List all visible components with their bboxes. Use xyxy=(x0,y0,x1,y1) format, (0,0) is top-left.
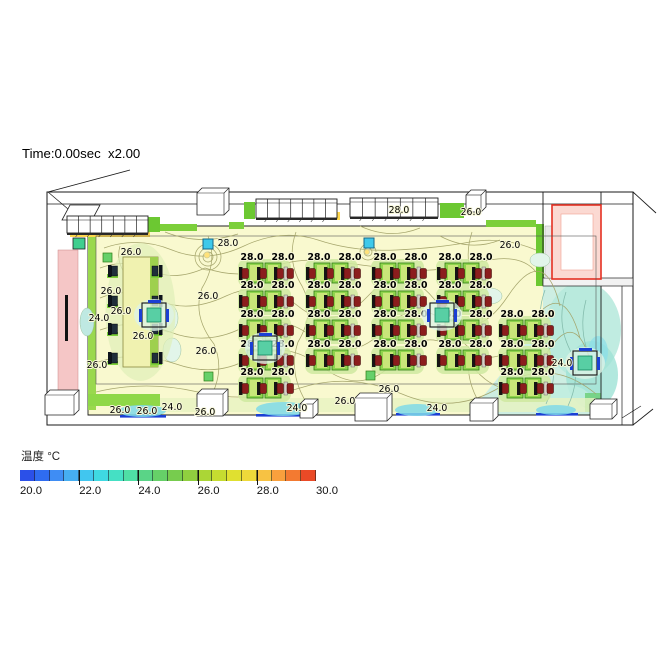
ceiling-vent xyxy=(67,216,148,237)
colorbar-segment xyxy=(20,470,35,481)
chair xyxy=(306,324,316,337)
chair xyxy=(499,354,509,367)
chair xyxy=(534,382,544,395)
chair xyxy=(341,324,351,337)
chair xyxy=(534,354,544,367)
cfd-simulation-screenshot: { "header": { "time_label": "Time:0.00se… xyxy=(0,0,661,661)
contour-label: 26.0 xyxy=(335,396,356,407)
colorbar-segment xyxy=(138,470,153,481)
colorbar-tick-label: 30.0 xyxy=(316,485,338,497)
desk-temp-label: 28.0 xyxy=(405,252,428,263)
contour-label: 24.0 xyxy=(552,358,573,369)
colorbar-segment xyxy=(64,470,79,481)
chair xyxy=(107,352,118,365)
desk-temp-label: 28.0 xyxy=(374,309,397,320)
desk-temp-label: 28.0 xyxy=(272,280,295,291)
desk-temp-label: 28.0 xyxy=(308,252,331,263)
contour-label: 26.0 xyxy=(196,346,217,357)
colorbar-segment xyxy=(109,470,124,481)
chair xyxy=(499,324,509,337)
chair xyxy=(306,354,316,367)
chair xyxy=(306,295,316,308)
chair xyxy=(239,382,249,395)
chair xyxy=(284,324,294,337)
equipment-unit xyxy=(422,299,462,331)
chair xyxy=(351,354,361,367)
colorbar-segment xyxy=(183,470,198,481)
contour-label: 24.0 xyxy=(162,402,183,413)
chair xyxy=(324,354,334,367)
chair xyxy=(257,382,267,395)
colorbar-tick xyxy=(198,470,199,485)
chair xyxy=(341,295,351,308)
desk-temp-label: 28.0 xyxy=(241,252,264,263)
desk-temp-label: 28.0 xyxy=(532,339,555,350)
colorbar-segment xyxy=(50,470,65,481)
chair xyxy=(417,295,427,308)
chair xyxy=(407,354,417,367)
colorbar-segment xyxy=(212,470,227,481)
chair xyxy=(417,324,427,337)
chair xyxy=(324,267,334,280)
contour-label: 26.0 xyxy=(87,360,108,371)
chair xyxy=(417,354,427,367)
contour-label: 26.0 xyxy=(110,405,131,416)
desk-temp-label: 28.0 xyxy=(405,280,428,291)
desk-temp-label: 28.0 xyxy=(501,309,524,320)
chair xyxy=(472,267,482,280)
chair xyxy=(372,267,382,280)
chair xyxy=(472,295,482,308)
chair xyxy=(455,267,465,280)
desk-temp-label: 28.0 xyxy=(339,309,362,320)
chair xyxy=(437,354,447,367)
chair xyxy=(437,267,447,280)
wall-box xyxy=(590,399,617,419)
desk-temp-label: 28.0 xyxy=(339,339,362,350)
contour-label: 26.0 xyxy=(500,240,521,251)
desk-temp-label: 28.0 xyxy=(241,280,264,291)
chair xyxy=(517,382,527,395)
colorbar-segment xyxy=(124,470,139,481)
chair xyxy=(390,354,400,367)
desk-temp-label: 28.0 xyxy=(308,280,331,291)
temperature-colorbar xyxy=(20,470,316,481)
colorbar-segment xyxy=(35,470,50,481)
desk-temp-label: 28.0 xyxy=(470,309,493,320)
equipment-unit xyxy=(134,299,174,331)
chair xyxy=(372,295,382,308)
chair xyxy=(482,324,492,337)
cool-air-spot xyxy=(536,405,576,415)
ceiling-vent xyxy=(256,199,337,222)
desk-temp-label: 28.0 xyxy=(532,309,555,320)
chair xyxy=(151,352,163,365)
chair xyxy=(306,267,316,280)
chair xyxy=(324,324,334,337)
chair xyxy=(257,295,267,308)
colorbar-tick xyxy=(257,470,258,485)
colorbar-tick-label: 28.0 xyxy=(257,485,279,497)
chair xyxy=(239,354,249,367)
contour-label: 26.0 xyxy=(195,407,216,418)
chair xyxy=(544,324,554,337)
chair xyxy=(239,295,249,308)
wall-sensor-marker xyxy=(73,238,85,249)
colorbar-tick-label: 22.0 xyxy=(79,485,101,497)
chair xyxy=(274,267,284,280)
contour-label: 24.0 xyxy=(427,403,448,414)
chair xyxy=(284,267,294,280)
chair xyxy=(284,295,294,308)
desk-temp-label: 28.0 xyxy=(501,339,524,350)
wall-box xyxy=(45,390,79,415)
contour-label: 26.0 xyxy=(379,384,400,395)
colorbar-tick-label: 20.0 xyxy=(20,485,42,497)
colorbar-segment xyxy=(198,470,213,481)
chair xyxy=(274,382,284,395)
contour-label: 28.0 xyxy=(218,238,239,249)
wall-box xyxy=(197,188,229,215)
equipment-unit xyxy=(245,332,285,364)
chair xyxy=(351,267,361,280)
desk-temp-label: 28.0 xyxy=(439,280,462,291)
chair xyxy=(351,324,361,337)
desk-temp-label: 28.0 xyxy=(470,280,493,291)
wall-box xyxy=(355,393,392,421)
chair xyxy=(417,267,427,280)
chair xyxy=(390,267,400,280)
green-marker xyxy=(204,372,213,381)
colorbar-segment xyxy=(153,470,168,481)
chair xyxy=(482,295,492,308)
desk-temp-label: 28.0 xyxy=(405,339,428,350)
chair xyxy=(239,267,249,280)
colorbar-tick-label: 24.0 xyxy=(138,485,160,497)
chair xyxy=(472,354,482,367)
sensor-marker xyxy=(203,239,213,249)
chair xyxy=(517,354,527,367)
colorbar-segment xyxy=(168,470,183,481)
chair xyxy=(284,382,294,395)
chair xyxy=(324,295,334,308)
contour-label: 26.0 xyxy=(198,291,219,302)
contour-label: 28.0 xyxy=(389,205,410,216)
chair xyxy=(341,354,351,367)
desk-temp-label: 28.0 xyxy=(470,339,493,350)
contour-label: 24.0 xyxy=(287,403,308,414)
green-marker xyxy=(366,371,375,380)
chair xyxy=(455,354,465,367)
chair xyxy=(341,267,351,280)
chair xyxy=(390,295,400,308)
contour-label: 24.0 xyxy=(89,313,110,324)
colorbar-segment xyxy=(242,470,257,481)
chair xyxy=(517,324,527,337)
chair xyxy=(151,265,163,278)
desk-temp-label: 28.0 xyxy=(470,252,493,263)
chair xyxy=(372,324,382,337)
contour-label: 26.0 xyxy=(137,406,158,417)
desk-temp-label: 28.0 xyxy=(374,252,397,263)
chair xyxy=(284,354,294,367)
chair xyxy=(107,323,118,336)
room-thermal-map: 28.028.028.028.028.028.028.028.028.028.0… xyxy=(0,0,661,661)
left-wall xyxy=(58,250,78,392)
desk-temp-label: 28.0 xyxy=(339,252,362,263)
chair xyxy=(407,267,417,280)
chair xyxy=(390,324,400,337)
colorbar-segment xyxy=(94,470,109,481)
desk-temp-label: 28.0 xyxy=(501,367,524,378)
chair xyxy=(472,324,482,337)
desk-temp-label: 28.0 xyxy=(339,280,362,291)
contour-label: 26.0 xyxy=(133,331,154,342)
chair xyxy=(407,324,417,337)
desk-temp-label: 28.0 xyxy=(308,309,331,320)
chair xyxy=(274,295,284,308)
chair xyxy=(107,265,118,278)
contour-label: 26.0 xyxy=(101,286,122,297)
legend-title: 温度 °C xyxy=(21,448,360,464)
desk-temp-label: 28.0 xyxy=(272,367,295,378)
contour-label: 26.0 xyxy=(111,306,132,317)
colorbar-segment xyxy=(286,470,301,481)
desk-temp-label: 28.0 xyxy=(439,339,462,350)
colorbar-segment xyxy=(301,470,316,481)
colorbar-legend: 温度 °C 20.022.024.026.028.030.0 xyxy=(20,448,360,501)
desk-temp-label: 28.0 xyxy=(272,309,295,320)
contour-label: 26.0 xyxy=(121,247,142,258)
chair xyxy=(351,295,361,308)
green-marker xyxy=(103,253,112,262)
colorbar-tick-labels: 20.022.024.026.028.030.0 xyxy=(20,485,360,501)
sensor-marker xyxy=(364,238,374,248)
chair xyxy=(257,267,267,280)
chair xyxy=(482,267,492,280)
chair xyxy=(407,295,417,308)
colorbar-segment xyxy=(272,470,287,481)
chair xyxy=(499,382,509,395)
colorbar-segment xyxy=(227,470,242,481)
chair xyxy=(544,382,554,395)
chair xyxy=(482,354,492,367)
desk-temp-label: 28.0 xyxy=(308,339,331,350)
desk-temp-label: 28.0 xyxy=(241,309,264,320)
contour-label: 26.0 xyxy=(461,207,482,218)
colorbar-segment xyxy=(79,470,94,481)
desk-temp-label: 28.0 xyxy=(241,367,264,378)
wall-slot xyxy=(65,295,68,341)
desk-temp-label: 28.0 xyxy=(374,339,397,350)
colorbar-tick-label: 26.0 xyxy=(198,485,220,497)
desk-temp-label: 28.0 xyxy=(374,280,397,291)
desk-temp-label: 28.0 xyxy=(272,252,295,263)
chair xyxy=(372,354,382,367)
chair xyxy=(534,324,544,337)
wall-box xyxy=(470,398,498,421)
chair xyxy=(239,324,249,337)
desk-temp-label: 28.0 xyxy=(439,252,462,263)
colorbar-tick xyxy=(79,470,80,485)
colorbar-tick xyxy=(138,470,139,485)
colorbar-segment xyxy=(257,470,272,481)
